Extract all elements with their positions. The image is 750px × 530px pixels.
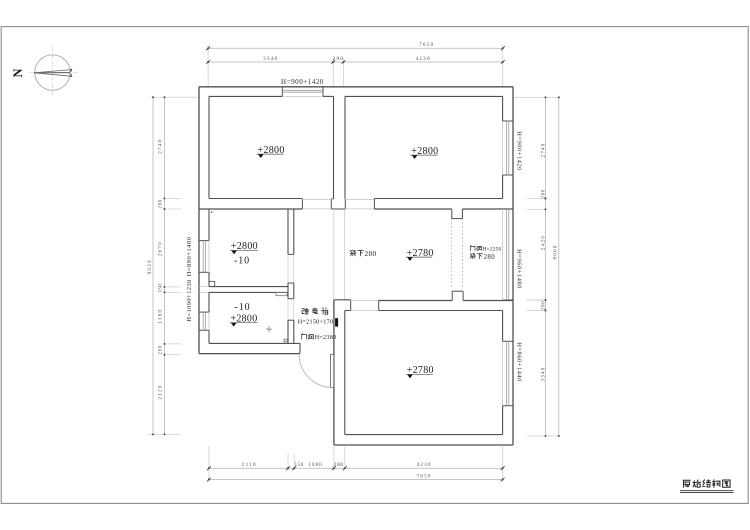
svg-text:H=860+1440: H=860+1440 xyxy=(516,342,523,382)
svg-text:280: 280 xyxy=(158,199,163,209)
svg-text:280: 280 xyxy=(542,189,547,199)
svg-text:4230: 4230 xyxy=(417,462,432,468)
svg-text:280: 280 xyxy=(484,254,496,261)
svg-text:H=900+1420: H=900+1420 xyxy=(516,131,523,171)
svg-text:4230: 4230 xyxy=(416,56,431,62)
svg-text:260: 260 xyxy=(158,345,163,355)
svg-text:H=900+1420: H=900+1420 xyxy=(281,78,324,86)
svg-text:2120: 2120 xyxy=(157,384,163,399)
svg-text:3340: 3340 xyxy=(541,366,547,381)
svg-text:280: 280 xyxy=(334,462,344,468)
svg-text:H=1090+1230: H=1090+1230 xyxy=(186,279,193,321)
svg-text:-10: -10 xyxy=(234,255,250,266)
svg-text:2740: 2740 xyxy=(541,142,547,157)
svg-text:9020: 9020 xyxy=(147,259,153,274)
svg-text:9060: 9060 xyxy=(553,244,559,259)
svg-text:280: 280 xyxy=(542,300,547,310)
svg-text:7650: 7650 xyxy=(419,42,434,48)
svg-text:H=2150+170: H=2150+170 xyxy=(298,318,334,325)
svg-text:H=880+1480: H=880+1480 xyxy=(186,237,193,277)
svg-text:2670: 2670 xyxy=(157,241,163,256)
svg-text:1380: 1380 xyxy=(157,309,163,324)
svg-text:H=2380: H=2380 xyxy=(315,334,337,341)
svg-text:-10: -10 xyxy=(235,302,251,313)
svg-text:150: 150 xyxy=(158,284,163,293)
svg-text:3340: 3340 xyxy=(263,56,278,62)
svg-text:150: 150 xyxy=(295,463,304,468)
svg-text:1080: 1080 xyxy=(308,462,322,468)
svg-text:280: 280 xyxy=(365,250,377,258)
svg-text:280: 280 xyxy=(333,56,344,62)
svg-text:2740: 2740 xyxy=(157,139,163,154)
svg-text:H=960+1480: H=960+1480 xyxy=(516,249,523,289)
svg-text:7650: 7650 xyxy=(417,474,432,480)
svg-text:H=2250: H=2250 xyxy=(483,246,502,252)
svg-text:2420: 2420 xyxy=(541,235,547,250)
svg-text:N: N xyxy=(11,68,25,77)
svg-text:2110: 2110 xyxy=(242,462,257,468)
